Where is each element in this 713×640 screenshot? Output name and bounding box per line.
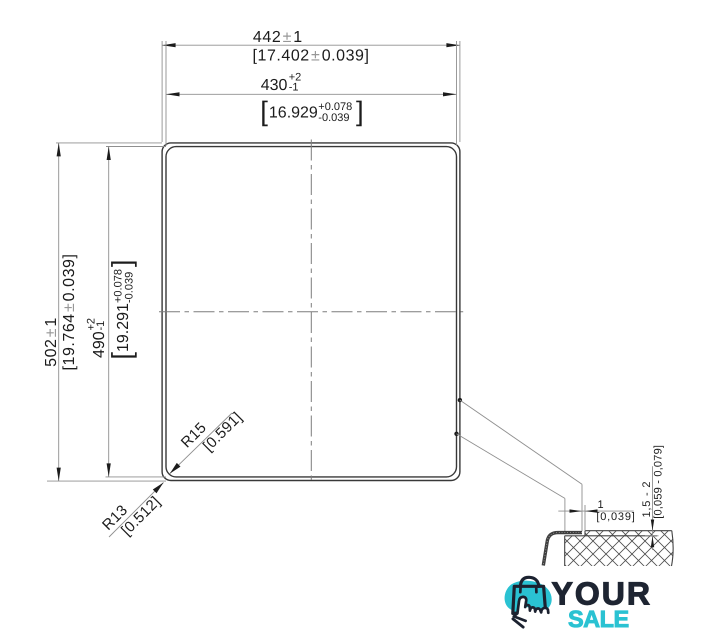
svg-text:]: ]	[106, 259, 137, 267]
svg-text:-1: -1	[289, 81, 299, 93]
svg-text:1,5 - 2: 1,5 - 2	[641, 481, 653, 518]
svg-text:-0.039: -0.039	[124, 272, 136, 303]
svg-text:[19.764±0.039]: [19.764±0.039]	[61, 254, 78, 371]
svg-text:[17.402±0.039]: [17.402±0.039]	[253, 48, 370, 65]
svg-text:-0.039: -0.039	[318, 112, 349, 124]
svg-text:442±1: 442±1	[253, 29, 303, 46]
svg-text:1: 1	[598, 499, 605, 511]
svg-text:[0,039]: [0,039]	[596, 511, 635, 523]
svg-text:]: ]	[356, 95, 364, 126]
svg-text:SALE: SALE	[568, 606, 629, 632]
svg-text:[: [	[260, 95, 268, 126]
svg-text:[0,059 - 0,079]: [0,059 - 0,079]	[653, 445, 665, 519]
svg-text:502±1: 502±1	[43, 317, 60, 367]
svg-text:19.291: 19.291	[115, 303, 132, 352]
svg-text:16.929: 16.929	[269, 105, 318, 122]
svg-text:-1: -1	[95, 321, 107, 331]
svg-text:430: 430	[261, 77, 288, 94]
